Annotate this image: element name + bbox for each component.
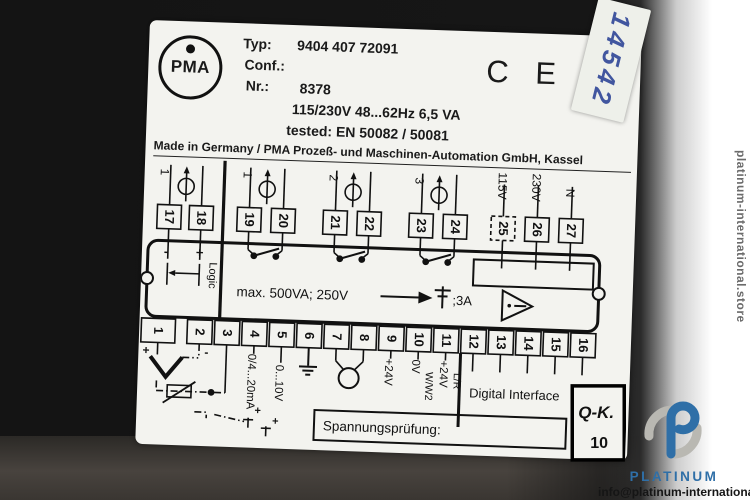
- terminal-number: 10: [411, 332, 426, 347]
- terminal-number: 6: [302, 332, 317, 340]
- tested-standards: tested: EN 50082 / 50081: [286, 122, 449, 144]
- plus24v-label: +24V: [381, 358, 394, 386]
- pma-logo-text: PMA: [170, 57, 210, 78]
- mains-115v-label: 115V: [495, 172, 510, 200]
- terminal-number: 8: [357, 334, 372, 342]
- terminal-number: 27: [564, 223, 579, 238]
- watermark-brand-block: PLATINUM info@platinum-international.sto…: [598, 400, 750, 500]
- inventory-number: 14542: [584, 9, 638, 111]
- watermark-vertical-text: platinum-international.store: [734, 150, 748, 323]
- terminal-number: 17: [162, 209, 177, 224]
- warning-triangle-icon: [502, 290, 533, 321]
- terminal-number: 15: [548, 337, 563, 352]
- terminal-number: 16: [576, 338, 591, 353]
- product-photo: { "colors": { "device_black": "#141414",…: [0, 0, 750, 500]
- zero-volt-label: 0V: [409, 359, 421, 374]
- terminal-number: 7: [329, 333, 344, 341]
- logic-symbol: [167, 263, 200, 286]
- logic-label: Logic: [206, 262, 219, 289]
- platinum-logo-icon: [635, 400, 713, 462]
- ww2-label: W/W2: [422, 372, 435, 401]
- terminal-number: 26: [530, 222, 545, 237]
- terminal-number: 4: [247, 330, 262, 339]
- terminal-number: 20: [276, 213, 291, 228]
- input-symbol-3: [345, 172, 362, 208]
- terminal-number: 21: [328, 215, 343, 230]
- input-group-label: 1: [241, 171, 255, 178]
- pma-logo: PMA: [157, 34, 223, 100]
- typ-value: 9404 407 72091: [297, 37, 399, 57]
- input-group-label: 2: [326, 174, 340, 181]
- typ-label: Typ:: [243, 35, 272, 52]
- tc-minus: -: [204, 345, 208, 359]
- thermocouple-symbol: [150, 342, 200, 378]
- tc-plus: +: [142, 343, 149, 357]
- logic-plus: +: [196, 245, 205, 260]
- brand-email: info@platinum-international.store: [598, 485, 750, 499]
- input-symbol-1: [178, 166, 195, 202]
- terminal-number: 13: [494, 335, 509, 350]
- ce-mark: C E: [486, 54, 566, 93]
- conf-label: Conf.:: [244, 56, 285, 73]
- power-supply-box: [473, 259, 594, 289]
- arrow-icon: [418, 292, 432, 304]
- terminal-number: 1: [151, 327, 166, 335]
- input-group-label: 1: [158, 168, 172, 175]
- power-rating: 115/230V 48...62Hz 6,5 VA: [292, 101, 461, 123]
- terminal-number: 23: [414, 218, 429, 233]
- mains-230v-label: 230V: [529, 173, 544, 202]
- transmitter-symbol: [335, 349, 364, 389]
- terminal-number: 19: [242, 212, 257, 227]
- digital-interface-label: Digital Interface: [469, 385, 560, 403]
- terminal-number: 18: [194, 210, 209, 225]
- nr-label: Nr.:: [245, 77, 269, 94]
- terminal-number: 24: [448, 219, 464, 235]
- wiring-diagram: 1 1 2 3 115V 230V N 17 18 19 20 21 22 2: [135, 158, 635, 467]
- current-range-label: 0/4...20mA: [243, 354, 257, 410]
- voltage-test-label: Spannungsprüfung:: [323, 418, 441, 437]
- mains-neutral-label: N: [563, 189, 577, 198]
- fuse-rating: ;3A: [452, 293, 472, 309]
- input-symbol-2: [259, 169, 276, 205]
- brand-name: PLATINUM: [598, 469, 750, 484]
- terminal-number: 12: [466, 334, 481, 349]
- fuse-icon: [434, 286, 451, 309]
- relay-rating: max. 500VA; 250V: [236, 284, 348, 303]
- input-group-label: 3: [412, 177, 426, 184]
- voltage-range-label: 0...10V: [272, 365, 285, 402]
- terminal-number: 22: [362, 216, 377, 231]
- mark-plus: +: [272, 416, 279, 428]
- terminal-number: 11: [439, 333, 454, 347]
- plus24v-label: +24V: [436, 360, 449, 388]
- logic-minus: -: [164, 244, 169, 259]
- pma-logo-dot-icon: [186, 44, 195, 53]
- terminal-number: 2: [193, 328, 208, 336]
- terminal-number: 14: [521, 336, 537, 352]
- nr-value: 8378: [299, 80, 331, 97]
- input-symbol-4: [431, 175, 448, 211]
- terminal-number: 25: [496, 221, 511, 236]
- terminal-number: 9: [384, 335, 399, 343]
- terminal-number: 3: [220, 329, 235, 337]
- type-label: PMA Typ: 9404 407 72091 Conf.: Nr.: 8378…: [135, 20, 641, 461]
- ground-icon: [299, 347, 318, 375]
- terminal-number: 5: [275, 331, 290, 339]
